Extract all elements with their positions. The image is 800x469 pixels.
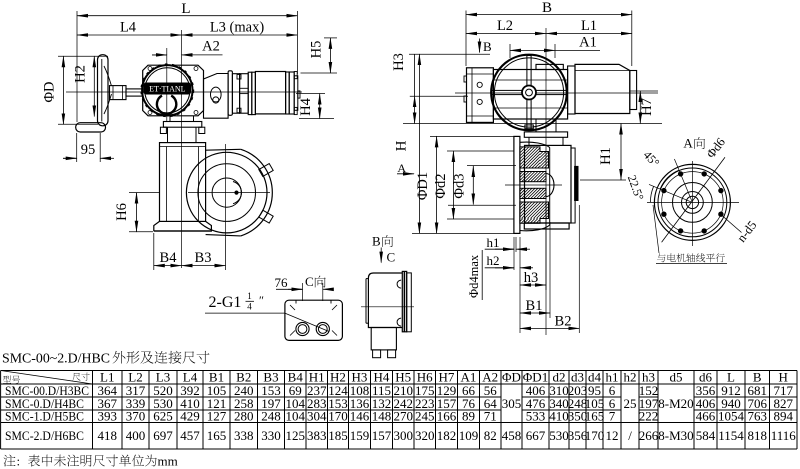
svg-text:266: 266 bbox=[639, 428, 659, 443]
svg-text:146: 146 bbox=[350, 408, 370, 423]
svg-text:ΦD: ΦD bbox=[42, 81, 58, 102]
svg-text:248: 248 bbox=[261, 408, 281, 423]
svg-text:B1: B1 bbox=[526, 298, 543, 314]
svg-text:SMC-1.D/H5BC: SMC-1.D/H5BC bbox=[5, 408, 84, 423]
svg-text:1154: 1154 bbox=[718, 428, 744, 443]
svg-text:418: 418 bbox=[98, 428, 118, 443]
svg-text:8-M30: 8-M30 bbox=[658, 428, 693, 443]
svg-text:182: 182 bbox=[437, 428, 457, 443]
svg-text:A: A bbox=[397, 161, 406, 175]
svg-text:25: 25 bbox=[624, 396, 637, 411]
svg-text:Φd2: Φd2 bbox=[433, 173, 449, 198]
svg-text:12: 12 bbox=[606, 428, 619, 443]
svg-text:7: 7 bbox=[609, 408, 616, 423]
svg-text:270: 270 bbox=[394, 408, 414, 423]
svg-text:h3: h3 bbox=[524, 270, 539, 286]
svg-text:C: C bbox=[305, 274, 314, 289]
svg-text:170: 170 bbox=[328, 408, 348, 423]
svg-text:330: 330 bbox=[261, 428, 281, 443]
svg-text:458: 458 bbox=[502, 428, 522, 443]
svg-text:″: ″ bbox=[259, 293, 264, 307]
svg-text:h1: h1 bbox=[487, 235, 500, 250]
svg-text:697: 697 bbox=[153, 428, 173, 443]
svg-text:SMC-00~2.D/HBC: SMC-00~2.D/HBC bbox=[2, 352, 110, 367]
svg-text:C: C bbox=[387, 250, 396, 265]
svg-text:89: 89 bbox=[462, 408, 475, 423]
svg-text:L2: L2 bbox=[497, 18, 513, 34]
svg-text:h2: h2 bbox=[487, 253, 500, 268]
svg-text:76: 76 bbox=[275, 275, 289, 290]
svg-text:763: 763 bbox=[748, 408, 768, 423]
svg-text:109: 109 bbox=[459, 428, 479, 443]
svg-text:2-G1: 2-G1 bbox=[209, 294, 242, 311]
svg-text:H: H bbox=[394, 140, 410, 151]
svg-text:H6: H6 bbox=[114, 203, 130, 221]
svg-text:4: 4 bbox=[247, 302, 252, 312]
svg-text:104: 104 bbox=[286, 408, 306, 423]
svg-text:82: 82 bbox=[484, 428, 497, 443]
svg-text:222: 222 bbox=[639, 408, 659, 423]
svg-text:148: 148 bbox=[372, 408, 392, 423]
svg-text:B4: B4 bbox=[160, 250, 178, 266]
svg-text:165: 165 bbox=[585, 408, 605, 423]
svg-text:170: 170 bbox=[585, 428, 605, 443]
svg-text:1116: 1116 bbox=[771, 428, 797, 443]
svg-text:304: 304 bbox=[307, 408, 327, 423]
svg-text:/: / bbox=[628, 428, 632, 443]
svg-text:B: B bbox=[542, 0, 552, 16]
svg-text:ΦD1: ΦD1 bbox=[415, 172, 431, 200]
svg-text:530: 530 bbox=[549, 428, 569, 443]
svg-text:429: 429 bbox=[180, 408, 200, 423]
svg-text:h2: h2 bbox=[624, 369, 637, 384]
svg-text:H3: H3 bbox=[391, 53, 407, 71]
svg-text:A2: A2 bbox=[202, 39, 220, 55]
svg-text:L1: L1 bbox=[581, 18, 597, 34]
svg-text:B: B bbox=[483, 39, 492, 54]
svg-text:L: L bbox=[181, 1, 190, 17]
svg-text:165: 165 bbox=[207, 428, 227, 443]
svg-text:Φd3: Φd3 bbox=[452, 173, 468, 198]
svg-text:338: 338 bbox=[234, 428, 254, 443]
svg-text:280: 280 bbox=[234, 408, 254, 423]
svg-text:SMC-2.D/H6BC: SMC-2.D/H6BC bbox=[5, 428, 84, 443]
svg-text:584: 584 bbox=[696, 428, 716, 443]
svg-text:157: 157 bbox=[372, 428, 392, 443]
svg-text:300: 300 bbox=[394, 428, 414, 443]
svg-text:305: 305 bbox=[502, 396, 522, 411]
svg-text:95: 95 bbox=[81, 142, 96, 158]
svg-text:245: 245 bbox=[415, 408, 435, 423]
svg-text:H7: H7 bbox=[639, 98, 655, 116]
svg-text:L3 (max): L3 (max) bbox=[210, 20, 265, 36]
svg-text:393: 393 bbox=[98, 408, 118, 423]
svg-text:A1: A1 bbox=[579, 34, 597, 50]
svg-text:400: 400 bbox=[126, 428, 146, 443]
svg-text:d5: d5 bbox=[670, 369, 683, 384]
svg-text:B: B bbox=[372, 234, 381, 249]
svg-text:Φd4max: Φd4max bbox=[467, 254, 481, 298]
svg-text:818: 818 bbox=[748, 428, 768, 443]
svg-text:H4: H4 bbox=[298, 97, 314, 115]
svg-text:ET·TIANL: ET·TIANL bbox=[149, 85, 186, 94]
svg-text:125: 125 bbox=[286, 428, 306, 443]
svg-text:894: 894 bbox=[774, 408, 794, 423]
svg-text:ΦD: ΦD bbox=[502, 369, 521, 384]
svg-text:H2: H2 bbox=[73, 65, 89, 83]
svg-text:L4: L4 bbox=[120, 20, 137, 36]
svg-text:533: 533 bbox=[526, 408, 546, 423]
svg-text:410: 410 bbox=[549, 408, 569, 423]
svg-text:667: 667 bbox=[526, 428, 546, 443]
svg-text:457: 457 bbox=[180, 428, 200, 443]
svg-text:H1: H1 bbox=[598, 147, 614, 165]
svg-text:mm: mm bbox=[158, 454, 178, 469]
svg-text:625: 625 bbox=[153, 408, 173, 423]
svg-text:127: 127 bbox=[207, 408, 227, 423]
svg-text:B3: B3 bbox=[195, 250, 212, 266]
svg-text:71: 71 bbox=[484, 408, 497, 423]
svg-text:320: 320 bbox=[415, 428, 435, 443]
svg-text:159: 159 bbox=[350, 428, 370, 443]
svg-text:370: 370 bbox=[126, 408, 146, 423]
svg-text:A: A bbox=[683, 136, 693, 151]
svg-text:1054: 1054 bbox=[718, 408, 745, 423]
svg-text:1: 1 bbox=[247, 291, 252, 301]
svg-text:383: 383 bbox=[307, 428, 327, 443]
svg-text:H5: H5 bbox=[309, 41, 325, 59]
svg-text:B2: B2 bbox=[555, 314, 572, 330]
svg-text:185: 185 bbox=[328, 428, 348, 443]
svg-text::: : bbox=[17, 454, 21, 469]
svg-text:466: 466 bbox=[696, 408, 716, 423]
svg-text:166: 166 bbox=[437, 408, 457, 423]
svg-text:8-M20: 8-M20 bbox=[658, 396, 693, 411]
